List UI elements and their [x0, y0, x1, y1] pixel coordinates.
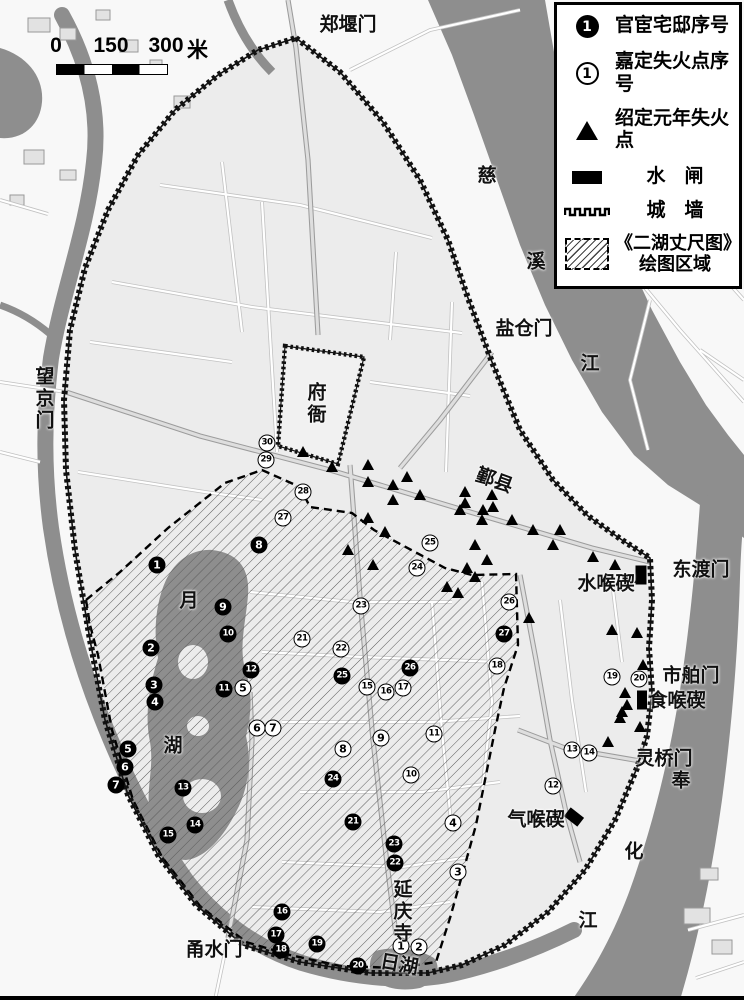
official-residence-marker-13: 13: [175, 780, 192, 797]
jiading-fire-marker-10: 10: [403, 767, 420, 784]
official-residence-marker-23: 23: [386, 836, 403, 853]
map-label: 食喉碶: [648, 692, 705, 713]
official-residence-marker-8: 8: [251, 537, 268, 554]
shaoding-fire-marker: [547, 539, 559, 550]
map-label: 气喉碶: [507, 811, 564, 832]
jiading-fire-marker-13: 13: [564, 742, 581, 759]
map-label: 水喉碶: [577, 575, 634, 596]
map-figure: 1234567891011121314151617181920212223242…: [0, 0, 744, 1000]
jiading-fire-marker-2: 2: [411, 939, 428, 956]
official-residence-marker-16: 16: [274, 904, 291, 921]
jiading-fire-marker-15: 15: [359, 679, 376, 696]
jiading-fire-marker-16: 16: [378, 684, 395, 701]
shaoding-fire-marker: [297, 446, 309, 457]
map-label: 日湖: [378, 952, 419, 979]
scale-tick-300: 300: [148, 34, 183, 58]
jiading-fire-marker-20: 20: [631, 671, 648, 688]
map-label: 化: [624, 843, 643, 864]
jiading-fire-marker-29: 29: [258, 452, 275, 469]
shaoding-fire-marker: [476, 514, 488, 525]
legend-label-survey-area: 《二湖丈尺图》 绘图区域: [615, 233, 735, 276]
legend-item-survey-area: 《二湖丈尺图》 绘图区域: [559, 233, 735, 276]
official-residence-marker-15: 15: [160, 827, 177, 844]
shaoding-fire-marker: [342, 544, 354, 555]
map-label: 东渡门: [672, 561, 729, 582]
shaoding-fire-marker: [454, 504, 466, 515]
jiading-fire-marker-5: 5: [235, 680, 252, 697]
official-residence-marker-2: 2: [143, 640, 160, 657]
official-residence-marker-6: 6: [117, 759, 134, 776]
scale-tick-150: 150: [93, 34, 128, 58]
shaoding-fire-marker: [387, 494, 399, 505]
jiading-fire-marker-11: 11: [426, 726, 443, 743]
legend-item-sluice: 水 闸: [559, 166, 735, 189]
jiading-fire-marker-30: 30: [259, 435, 276, 452]
jiading-fire-marker-24: 24: [409, 560, 426, 577]
map-label: 月: [179, 592, 198, 613]
jiading-fire-marker-19: 19: [604, 669, 621, 686]
official-residence-marker-12: 12: [243, 662, 260, 679]
shaoding-fire-marker: [452, 587, 464, 598]
shaoding-fire-marker: [609, 559, 621, 570]
jiading-fire-marker-28: 28: [295, 484, 312, 501]
sluice-marker: [637, 691, 647, 710]
shaoding-fire-marker: [469, 539, 481, 550]
official-residence-symbol: 1: [576, 15, 599, 38]
official-residence-marker-25: 25: [334, 668, 351, 685]
scale-bar: 0 150 300 米: [44, 34, 214, 82]
jiading-fire-symbol: 1: [576, 62, 599, 85]
map-label: 望京门: [32, 366, 53, 432]
official-residence-marker-3: 3: [146, 677, 163, 694]
map-label: 延庆寺: [390, 879, 411, 945]
shaoding-fire-marker: [379, 526, 391, 537]
map-label: 江: [580, 355, 599, 376]
jiading-fire-marker-21: 21: [294, 631, 311, 648]
jiading-fire-marker-17: 17: [395, 680, 412, 697]
legend-item-official: 1 官宦宅邸序号: [559, 15, 735, 38]
official-residence-marker-27: 27: [496, 626, 513, 643]
jiading-fire-marker-12: 12: [545, 778, 562, 795]
map-label: 慈: [477, 167, 496, 188]
wall-symbol: [559, 206, 615, 217]
shaoding-fire-marker: [481, 554, 493, 565]
map-label: 鄞县: [473, 466, 516, 499]
shaoding-fire-marker: [469, 571, 481, 582]
official-residence-marker-21: 21: [345, 814, 362, 831]
official-residence-marker-9: 9: [215, 599, 232, 616]
shaoding-fire-marker: [387, 479, 399, 490]
legend-item-jiading: 1 嘉定失火点序号: [559, 51, 735, 97]
official-residence-marker-7: 7: [108, 777, 125, 794]
sluice-marker: [636, 566, 647, 585]
shaoding-fire-marker: [637, 659, 649, 670]
shaoding-fire-marker: [614, 712, 626, 723]
map-label: 甬水门: [185, 941, 242, 962]
map-label: 江: [578, 912, 597, 933]
map-label: 湖: [163, 737, 182, 758]
jiading-fire-marker-26: 26: [501, 594, 518, 611]
shaoding-fire-marker: [362, 512, 374, 523]
official-residence-marker-24: 24: [325, 771, 342, 788]
official-residence-marker-4: 4: [147, 694, 164, 711]
shaoding-fire-marker: [326, 461, 338, 472]
map-label: 奉: [671, 772, 690, 793]
shaoding-fire-marker: [523, 612, 535, 623]
official-residence-marker-11: 11: [216, 681, 233, 698]
jiading-fire-marker-22: 22: [333, 641, 350, 658]
survey-area-symbol: [565, 238, 609, 270]
legend-item-wall: 城 墙: [559, 200, 735, 223]
shaoding-fire-marker: [459, 486, 471, 497]
official-residence-marker-5: 5: [120, 741, 137, 758]
jiading-fire-marker-9: 9: [373, 730, 390, 747]
sluice-marker: [564, 807, 584, 826]
map-label: 灵桥门: [635, 750, 692, 771]
shaoding-fire-marker: [414, 489, 426, 500]
map-label: 郑堰门: [319, 16, 376, 37]
official-residence-marker-10: 10: [220, 626, 237, 643]
shaoding-fire-marker: [602, 736, 614, 747]
scale-bar-graphic: [56, 64, 168, 75]
map-label: 溪: [526, 253, 545, 274]
shaoding-fire-marker: [362, 459, 374, 470]
legend-label-shaoding: 绍定元年失火点: [615, 108, 735, 154]
official-residence-marker-1: 1: [149, 557, 166, 574]
shaoding-fire-marker: [606, 624, 618, 635]
shaoding-fire-marker: [401, 471, 413, 482]
jiading-fire-marker-18: 18: [489, 658, 506, 675]
shaoding-fire-marker: [634, 721, 646, 732]
jiading-fire-marker-23: 23: [353, 598, 370, 615]
jiading-fire-marker-7: 7: [265, 720, 282, 737]
jiading-fire-marker-27: 27: [275, 510, 292, 527]
map-label: 市舶门: [662, 667, 719, 688]
sluice-symbol: [572, 171, 602, 184]
shaoding-fire-marker: [619, 687, 631, 698]
shaoding-fire-marker: [554, 524, 566, 535]
shaoding-fire-marker: [362, 476, 374, 487]
official-residence-marker-26: 26: [402, 660, 419, 677]
official-residence-marker-18: 18: [273, 942, 290, 959]
jiading-fire-marker-6: 6: [249, 720, 266, 737]
legend-item-shaoding: 绍定元年失火点: [559, 108, 735, 154]
shaoding-fire-marker: [527, 524, 539, 535]
scale-unit: 米: [187, 34, 208, 64]
legend-label-jiading: 嘉定失火点序号: [615, 51, 735, 97]
official-residence-marker-14: 14: [187, 817, 204, 834]
shaoding-fire-marker: [367, 559, 379, 570]
scale-tick-0: 0: [50, 34, 62, 58]
legend-label-sluice: 水 闸: [615, 166, 735, 189]
legend: 1 官宦宅邸序号 1 嘉定失火点序号 绍定元年失火点 水 闸 城 墙 《二湖丈尺…: [554, 2, 742, 289]
shaoding-fire-marker: [631, 627, 643, 638]
jiading-fire-marker-14: 14: [581, 745, 598, 762]
official-residence-marker-20: 20: [350, 958, 367, 975]
shaoding-fire-symbol: [576, 121, 598, 140]
shaoding-fire-marker: [587, 551, 599, 562]
jiading-fire-marker-4: 4: [445, 815, 462, 832]
legend-label-official: 官宦宅邸序号: [615, 15, 735, 38]
map-label: 府衙: [304, 382, 325, 426]
shaoding-fire-marker: [506, 514, 518, 525]
figure-border-bottom: [0, 996, 744, 1000]
jiading-fire-marker-25: 25: [422, 535, 439, 552]
official-residence-marker-22: 22: [387, 855, 404, 872]
map-label: 盐仓门: [495, 320, 552, 341]
jiading-fire-marker-3: 3: [450, 864, 467, 881]
official-residence-marker-19: 19: [309, 936, 326, 953]
jiading-fire-marker-8: 8: [335, 741, 352, 758]
legend-label-wall: 城 墙: [615, 200, 735, 223]
